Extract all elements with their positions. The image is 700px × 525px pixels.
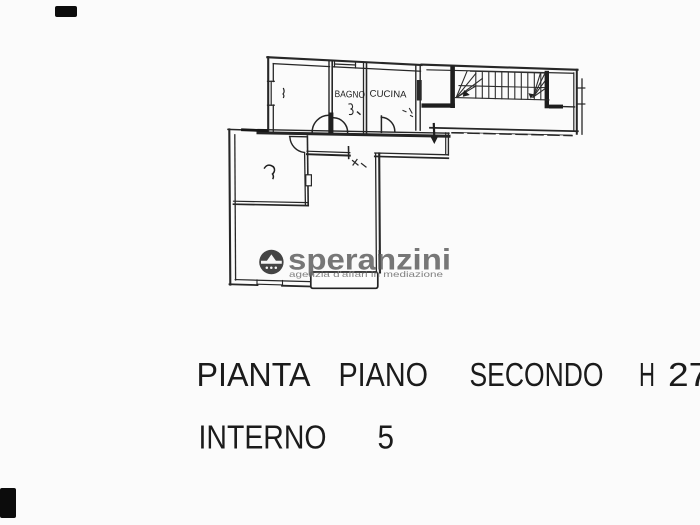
svg-text:speranzini: speranzini	[288, 243, 451, 276]
svg-text:BAGNO: BAGNO	[334, 89, 365, 101]
svg-text:5: 5	[378, 419, 395, 456]
svg-text:270: 270	[668, 356, 700, 393]
svg-text:INTERNO: INTERNO	[199, 419, 327, 456]
svg-text:CUCINA: CUCINA	[369, 89, 407, 101]
svg-text:PIANTA: PIANTA	[197, 356, 311, 393]
svg-text:PIANO: PIANO	[339, 356, 429, 393]
svg-text:SECONDO: SECONDO	[470, 356, 604, 393]
svg-text:H: H	[639, 356, 655, 393]
